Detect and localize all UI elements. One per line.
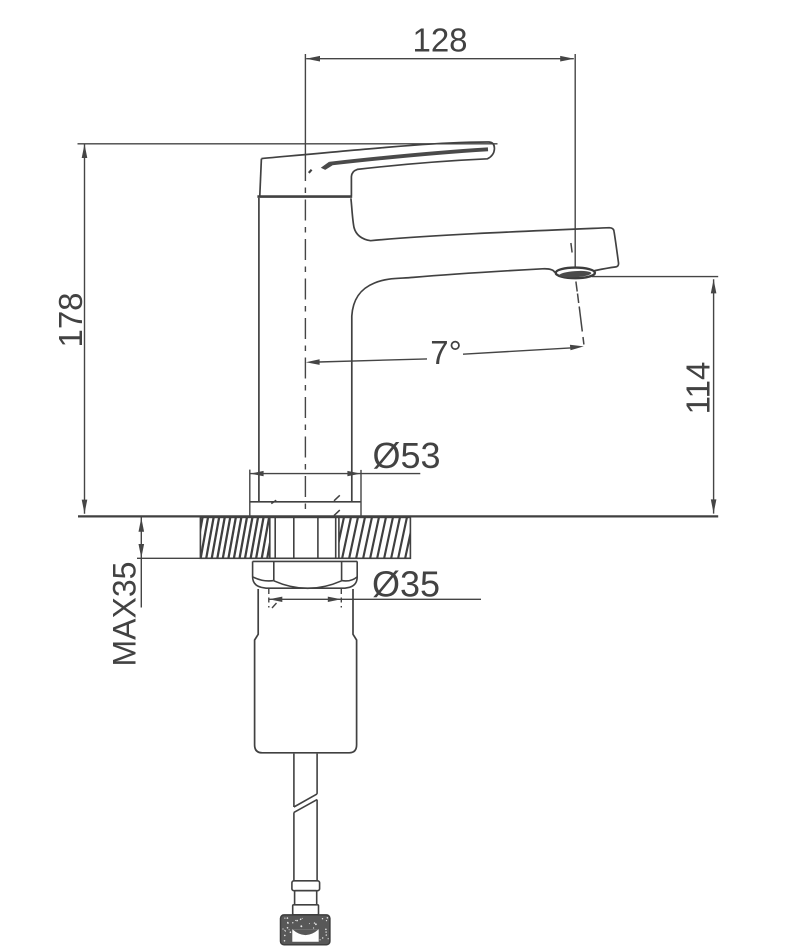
svg-text:Ø53: Ø53 — [372, 435, 440, 476]
svg-text:Ø35: Ø35 — [372, 564, 440, 605]
svg-text:178: 178 — [52, 292, 89, 347]
svg-text:128: 128 — [412, 22, 467, 59]
svg-text:MAX35: MAX35 — [107, 562, 143, 667]
svg-text:114: 114 — [680, 362, 717, 415]
svg-text:7°: 7° — [430, 334, 462, 371]
